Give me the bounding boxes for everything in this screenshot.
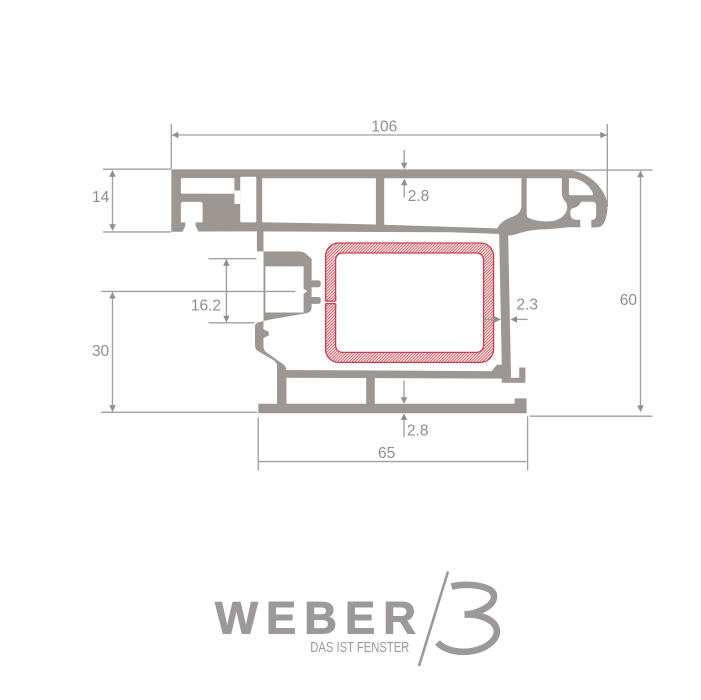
svg-text:2.8: 2.8 <box>407 423 429 440</box>
svg-text:WEBER: WEBER <box>215 593 416 644</box>
svg-text:DAS IST FENSTER: DAS IST FENSTER <box>310 639 409 656</box>
svg-text:30: 30 <box>92 343 110 360</box>
svg-text:16.2: 16.2 <box>191 297 221 314</box>
svg-text:14: 14 <box>92 189 110 206</box>
svg-text:60: 60 <box>620 292 638 309</box>
svg-text:2.3: 2.3 <box>516 297 538 314</box>
svg-text:65: 65 <box>378 445 395 462</box>
svg-text:2.8: 2.8 <box>408 188 430 205</box>
svg-text:106: 106 <box>371 118 397 135</box>
